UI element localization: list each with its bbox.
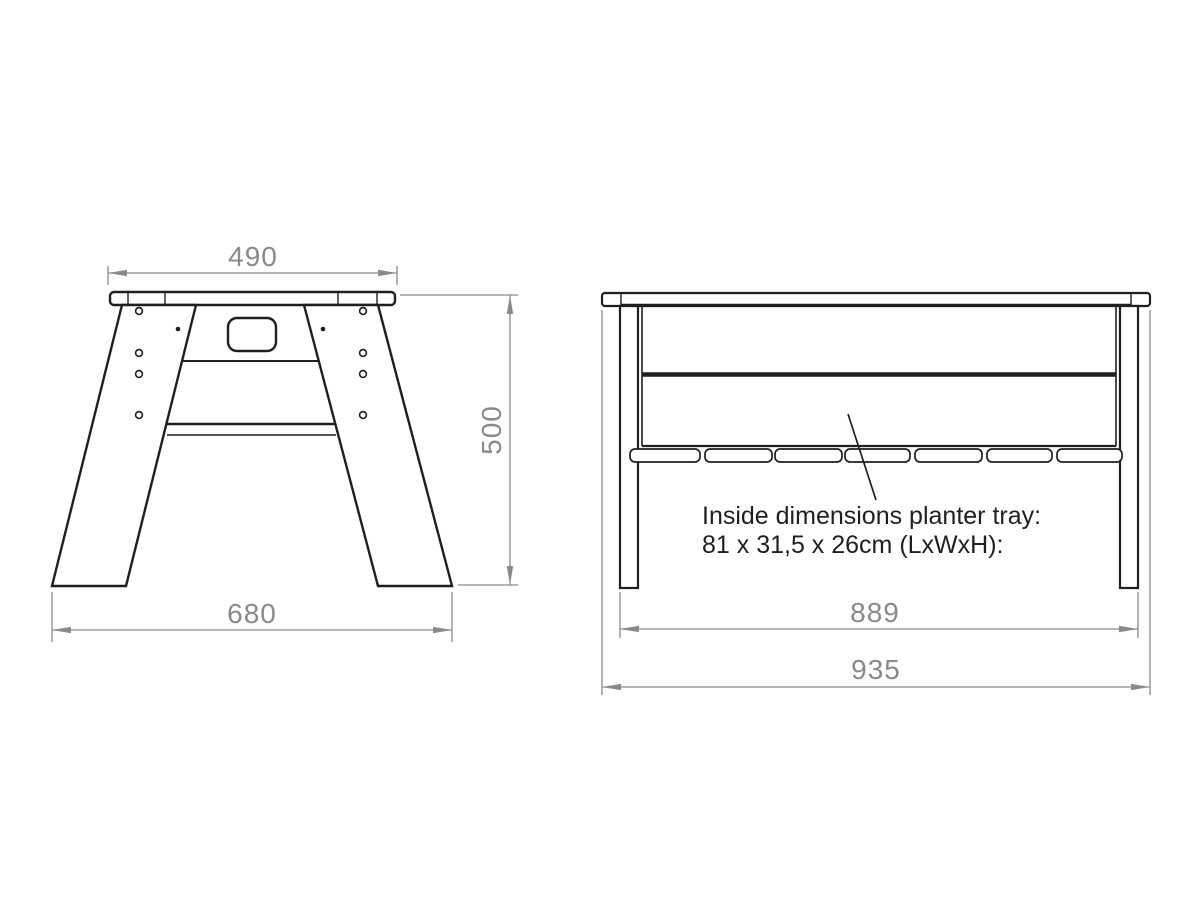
tray-slats bbox=[630, 449, 1122, 462]
dimension-bottom-width: 680 bbox=[52, 592, 452, 642]
planter-table-dimension-drawing: 490 680 500 bbox=[0, 0, 1200, 901]
right-leg-board bbox=[304, 305, 452, 586]
side-view: 490 680 500 bbox=[52, 241, 518, 642]
dimension-legs-outer-width: 889 bbox=[620, 592, 1138, 638]
dim-bottom-width-label: 680 bbox=[227, 598, 277, 629]
technical-drawing-page: 490 680 500 bbox=[0, 0, 1200, 901]
dim-height-label: 500 bbox=[476, 405, 507, 455]
front-right-leg bbox=[1120, 306, 1138, 588]
front-view: 889 935 bbox=[602, 293, 1150, 695]
screw-dots bbox=[176, 327, 326, 332]
side-tabletop bbox=[110, 292, 395, 305]
annotation-line-1: Inside dimensions planter tray: bbox=[702, 502, 1041, 530]
handle-cutout bbox=[228, 318, 276, 351]
dim-total-width-label: 935 bbox=[851, 654, 901, 685]
annotation-line-2: 81 x 31,5 x 26cm (LxWxH): bbox=[702, 531, 1003, 559]
left-leg-board bbox=[52, 305, 196, 586]
dim-legs-outer-width-label: 889 bbox=[850, 597, 900, 628]
dimension-top-width: 490 bbox=[108, 241, 397, 285]
side-view-structure bbox=[52, 292, 452, 586]
front-left-leg bbox=[620, 306, 638, 588]
annotation-text: Inside dimensions planter tray: 81 x 31,… bbox=[702, 502, 1041, 559]
dim-top-width-label: 490 bbox=[228, 241, 278, 272]
